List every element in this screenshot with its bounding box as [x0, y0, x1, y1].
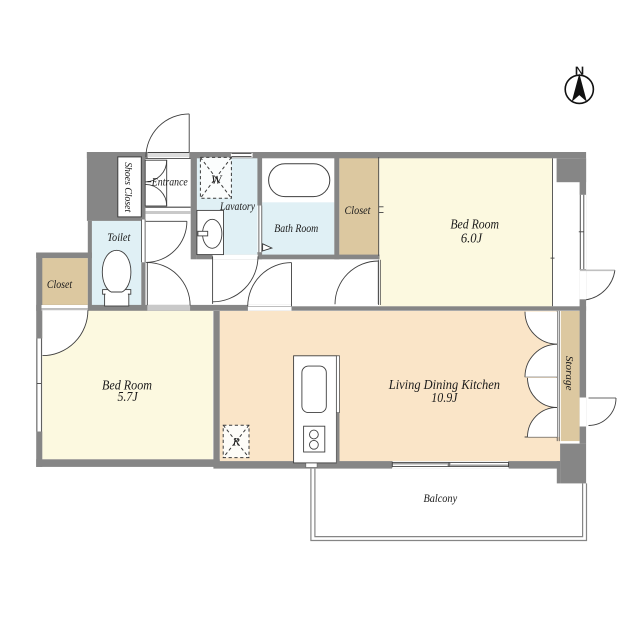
svg-text:Entrance: Entrance	[151, 177, 188, 189]
svg-text:Balcony: Balcony	[423, 493, 457, 505]
svg-text:Toilet: Toilet	[107, 232, 131, 244]
svg-text:Closet: Closet	[345, 205, 372, 217]
svg-text:6.0J: 6.0J	[461, 231, 483, 246]
svg-text:5.7J: 5.7J	[117, 389, 138, 404]
svg-text:Bed Room: Bed Room	[450, 217, 499, 232]
svg-text:Closet: Closet	[47, 279, 73, 291]
svg-text:10.9J: 10.9J	[431, 390, 458, 405]
svg-text:W: W	[211, 172, 223, 187]
svg-text:Bath Room: Bath Room	[274, 223, 318, 235]
svg-text:Lavatory: Lavatory	[219, 201, 256, 213]
svg-text:Storage: Storage	[563, 356, 574, 391]
svg-text:Shoes Closet: Shoes Closet	[122, 162, 133, 213]
svg-text:R: R	[232, 436, 240, 448]
